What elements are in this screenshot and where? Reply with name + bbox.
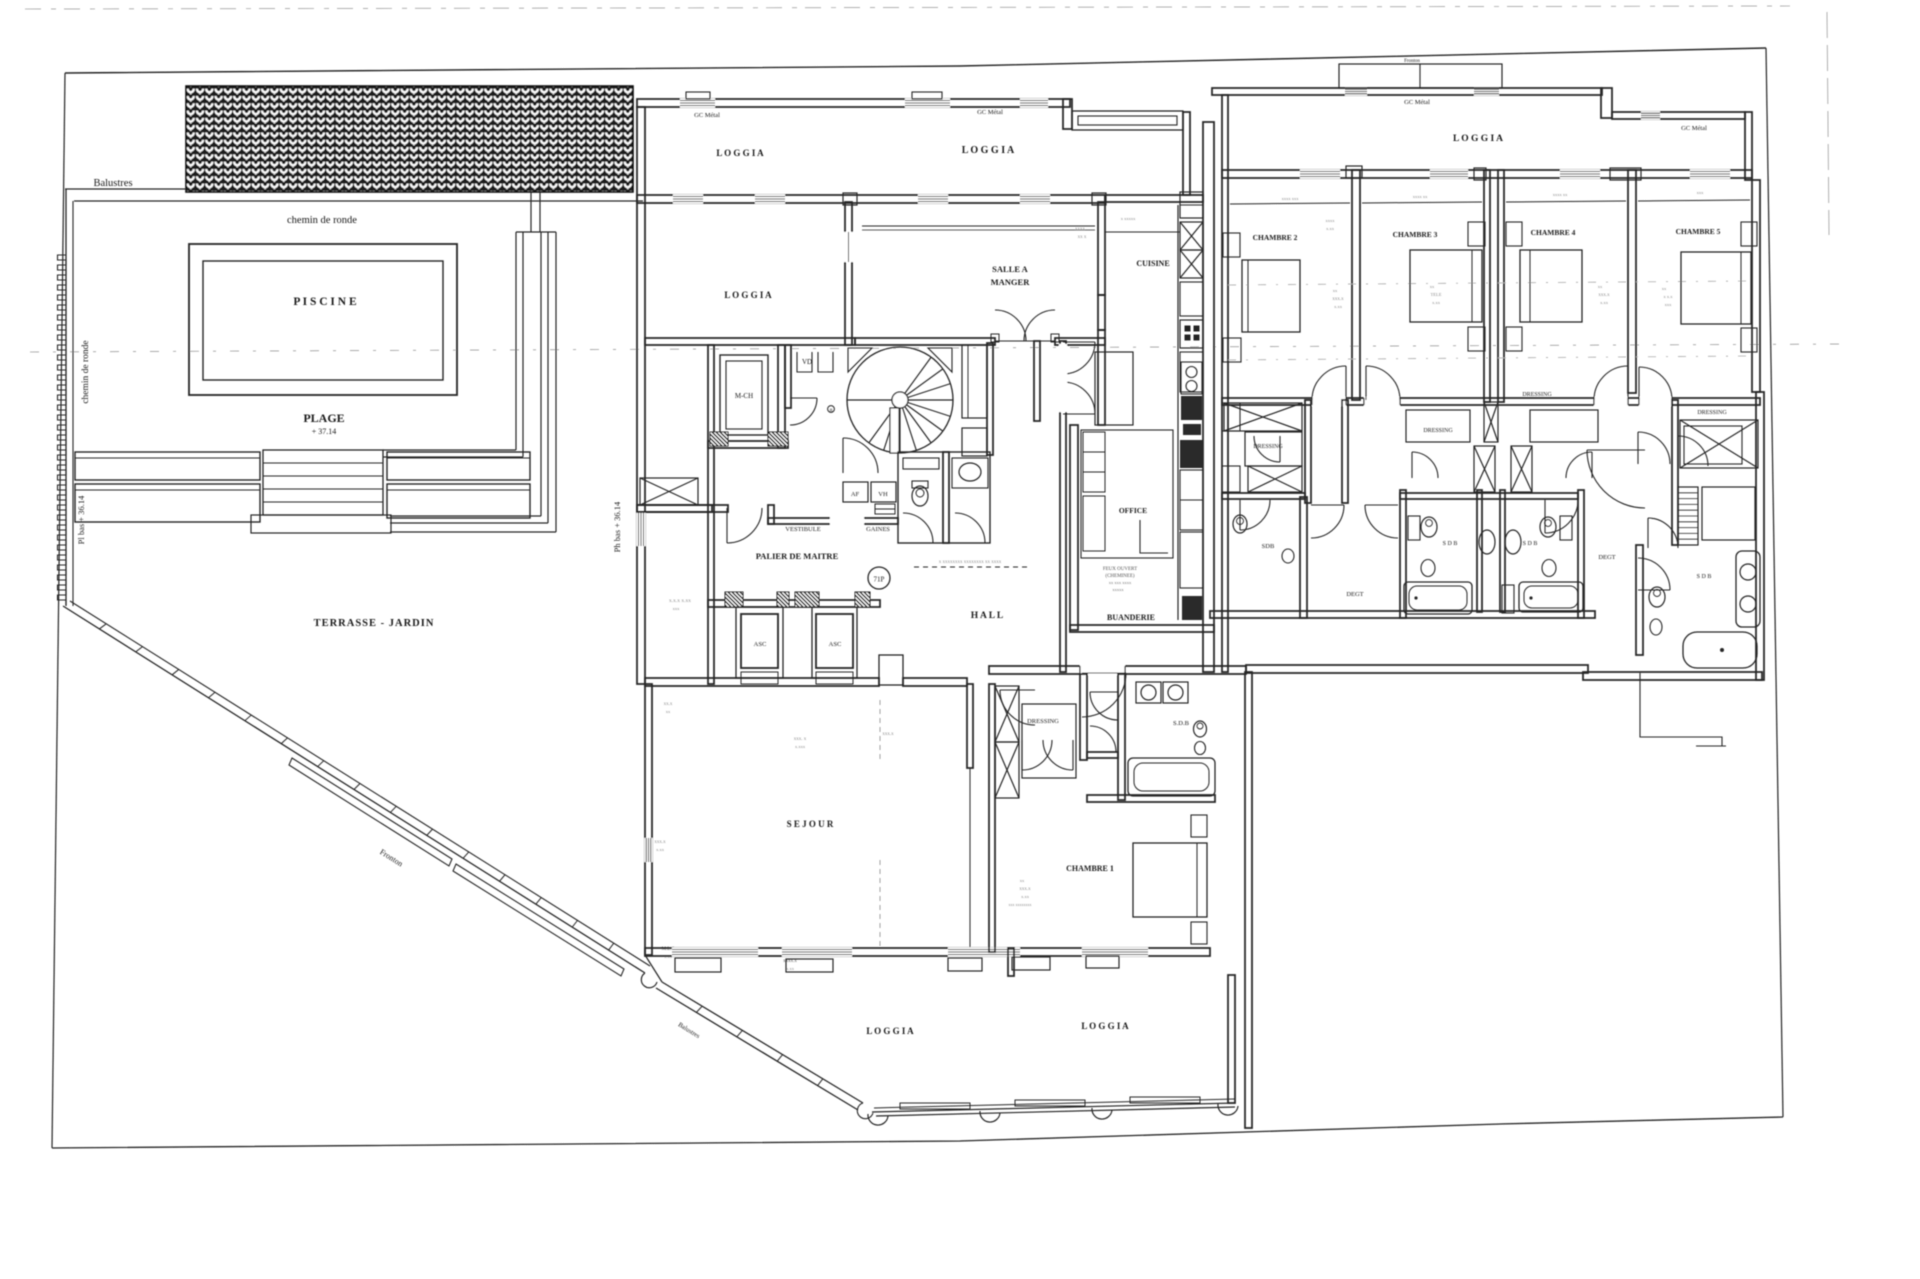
svg-text:GC Métal: GC Métal [1404, 99, 1430, 106]
svg-text:71P: 71P [874, 576, 885, 584]
svg-text:xx: xx [1430, 284, 1435, 289]
svg-text:TERRASSE - JARDIN: TERRASSE - JARDIN [314, 618, 435, 629]
svg-text:DEGT: DEGT [1598, 554, 1615, 561]
svg-text:L O G G I A: L O G G I A [866, 1026, 914, 1036]
svg-text:GC Métal: GC Métal [977, 109, 1003, 116]
svg-text:xx x: xx x [1078, 235, 1087, 240]
svg-text:xx: xx [666, 709, 671, 714]
svg-text:DEGT: DEGT [1346, 591, 1363, 598]
svg-text:xxxx: xxxx [1075, 227, 1086, 232]
svg-text:x.xx: x.xx [1326, 226, 1335, 231]
svg-text:x.xxx: x.xxx [795, 744, 806, 749]
svg-text:xx: xx [1020, 878, 1025, 883]
svg-text:SDB: SDB [1262, 543, 1275, 550]
svg-text:DRESSING: DRESSING [1697, 410, 1727, 416]
svg-text:S D B: S D B [1697, 574, 1712, 580]
svg-text:xx.x: xx.x [664, 702, 673, 707]
svg-text:xxx: xxx [1697, 190, 1705, 195]
svg-text:x.xx: x.xx [1021, 894, 1030, 899]
svg-text:xxx.x: xxx.x [882, 732, 894, 737]
svg-text:S E J O U R: S E J O U R [787, 819, 834, 829]
svg-text:SALLE A: SALLE A [992, 264, 1029, 274]
svg-text:xxx.x: xxx.x [654, 840, 666, 845]
svg-text:x.xx: x.xx [656, 847, 665, 852]
svg-text:GC Métal: GC Métal [1681, 125, 1707, 132]
svg-text:ASC: ASC [829, 641, 842, 648]
svg-text:x xxxxx: x xxxxx [1121, 216, 1136, 221]
svg-text:xxxx xx: xxxx xx [1413, 194, 1428, 199]
svg-text:DRESSING: DRESSING [1522, 392, 1552, 398]
svg-text:xxx.x: xxx.x [1598, 293, 1610, 298]
svg-text:xxxxx: xxxxx [1112, 587, 1124, 592]
svg-text:PLAGE: PLAGE [303, 411, 344, 425]
svg-text:CHAMBRE 1: CHAMBRE 1 [1066, 864, 1114, 873]
svg-text:GC Métal: GC Métal [694, 112, 720, 119]
svg-text:CUISINE: CUISINE [1136, 259, 1169, 268]
svg-text:xx xxx xxxx: xx xxx xxxx [1109, 580, 1132, 585]
svg-text:GAINES: GAINES [866, 526, 890, 533]
svg-text:CHAMBRE 2: CHAMBRE 2 [1253, 233, 1298, 242]
svg-text:x.x.x x.xx: x.x.x x.xx [669, 598, 691, 604]
svg-text:xxxx: xxxx [1326, 218, 1336, 223]
svg-text:+ 37.14: + 37.14 [312, 427, 337, 436]
svg-text:x xxxxxxxx xxxxxxxx xx xxxx: x xxxxxxxx xxxxxxxx xx xxxx [939, 560, 1002, 565]
svg-text:H A L L: H A L L [971, 611, 1003, 621]
svg-text:L O G G I A: L O G G I A [1453, 134, 1503, 144]
svg-text:L O G G I A: L O G G I A [724, 290, 772, 300]
svg-text:8: 8 [830, 408, 833, 414]
svg-text:Balustres: Balustres [93, 178, 132, 189]
svg-text:Ph bas + 36.14: Ph bas + 36.14 [612, 501, 622, 552]
svg-text:VD: VD [802, 358, 812, 366]
svg-text:x.xx: x.xx [1334, 304, 1343, 309]
svg-text:xxxx xxx: xxxx xxx [1282, 196, 1300, 201]
svg-text:Fronton: Fronton [1404, 59, 1420, 64]
svg-text:L O G G I A: L O G G I A [716, 148, 764, 158]
svg-text:DRESSING: DRESSING [1423, 428, 1453, 434]
svg-text:ASC: ASC [754, 641, 767, 648]
svg-text:CHAMBRE 4: CHAMBRE 4 [1531, 228, 1576, 237]
svg-text:L O G G I A: L O G G I A [1081, 1021, 1129, 1031]
svg-text:xx: xx [1598, 284, 1603, 289]
svg-text:OFFICE: OFFICE [1119, 506, 1147, 515]
svg-text:CHAMBRE 3: CHAMBRE 3 [1393, 230, 1438, 239]
svg-text:DRESSING: DRESSING [1027, 718, 1059, 725]
svg-text:PALIER DE MAITRE: PALIER DE MAITRE [756, 551, 839, 561]
svg-text:MANGER: MANGER [991, 277, 1031, 287]
svg-text:P I S C I N E: P I S C I N E [293, 296, 357, 308]
svg-text:x.xx: x.xx [1432, 300, 1441, 305]
svg-text:S D B: S D B [1443, 541, 1458, 547]
svg-text:chemin de ronde: chemin de ronde [287, 215, 357, 226]
svg-text:x x.x: x x.x [1664, 294, 1674, 299]
svg-text:xx: xx [1333, 288, 1338, 293]
svg-text:xxx. x: xxx. x [794, 737, 807, 742]
svg-text:VESTIBULE: VESTIBULE [785, 526, 820, 533]
svg-text:xxx: xxx [1665, 302, 1673, 307]
svg-text:xx: xx [1662, 286, 1667, 291]
svg-text:chemin de ronde: chemin de ronde [81, 340, 91, 403]
svg-text:xxxx.x: xxxx.x [783, 959, 797, 964]
svg-text:(CHEMINEE): (CHEMINEE) [1105, 574, 1134, 579]
svg-text:S.D.B: S.D.B [1173, 720, 1190, 727]
svg-text:M-CH: M-CH [735, 392, 753, 400]
svg-text:FEUX OUVERT: FEUX OUVERT [1103, 567, 1137, 572]
svg-text:TELE: TELE [1431, 292, 1442, 297]
svg-text:Pl bas + 36.14: Pl bas + 36.14 [76, 495, 86, 544]
svg-text:L O G G I A: L O G G I A [962, 145, 1015, 156]
svg-text:S D B: S D B [1523, 541, 1538, 547]
svg-text:x.xx: x.xx [1600, 300, 1609, 305]
svg-text:xxxx xx: xxxx xx [1553, 192, 1568, 197]
svg-text:AF: AF [851, 491, 860, 498]
svg-text:BUANDERIE: BUANDERIE [1107, 613, 1155, 622]
svg-text:x.xx: x.xx [786, 966, 795, 971]
svg-text:VH: VH [878, 491, 888, 498]
svg-text:xxx.x: xxx.x [1332, 297, 1344, 302]
svg-text:xxx xxxxxxxx: xxx xxxxxxxx [1009, 902, 1032, 907]
svg-text:CHAMBRE 5: CHAMBRE 5 [1676, 227, 1721, 236]
svg-text:xxx.x: xxx.x [1019, 887, 1031, 892]
svg-text:xxx: xxx [673, 606, 681, 611]
